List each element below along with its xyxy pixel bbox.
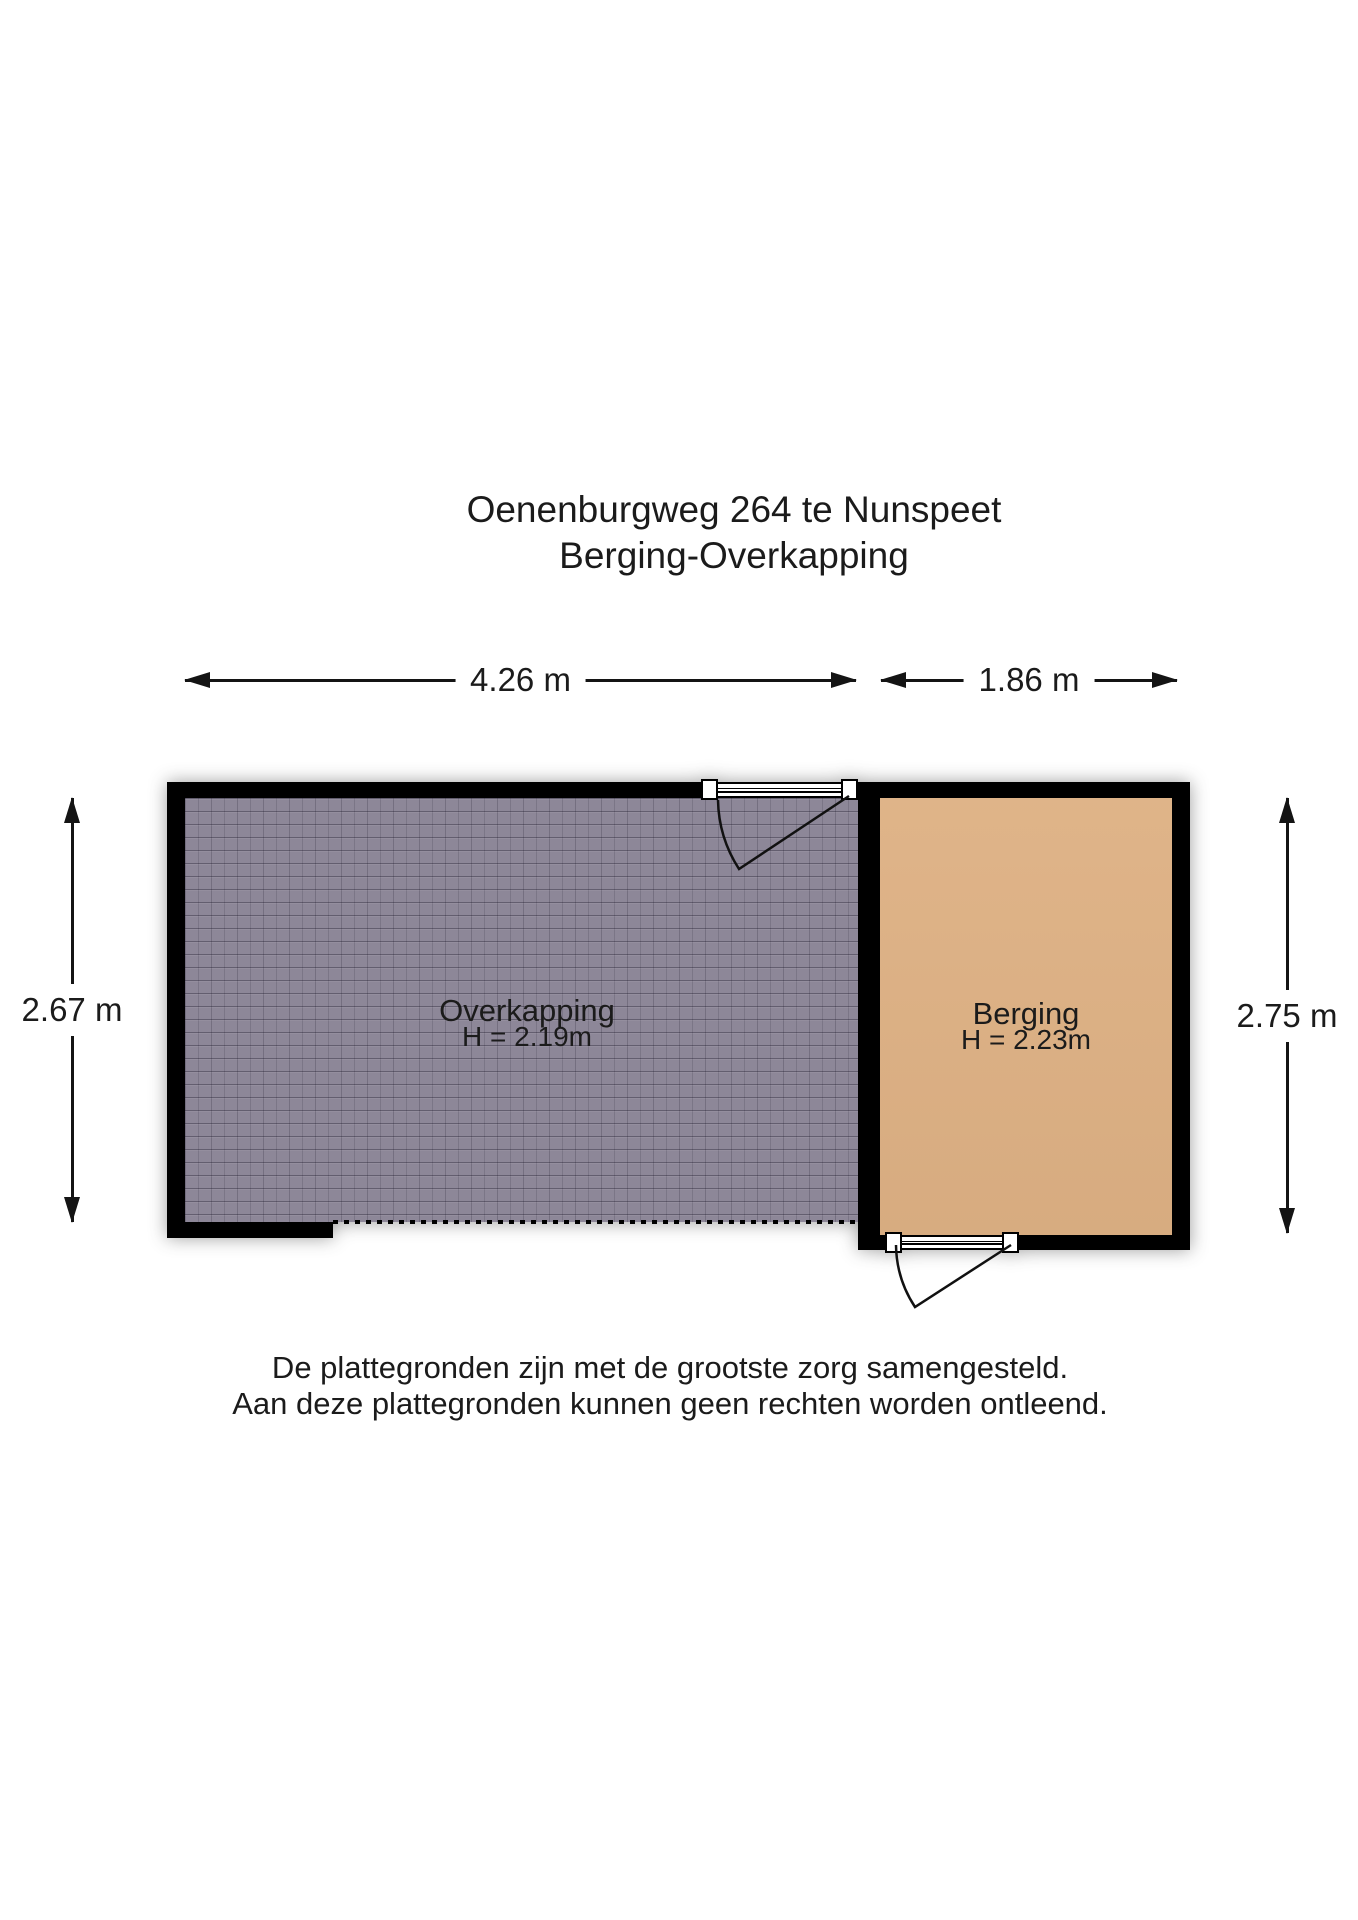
room-label-overkapping: Overkapping H = 2.19m — [439, 997, 615, 1050]
door-post-icon — [701, 779, 718, 800]
door-post-icon — [885, 1232, 902, 1253]
room-label-berging: Berging H = 2.23m — [961, 1000, 1091, 1053]
floorplan — [0, 0, 1358, 1920]
disclaimer-line2: Aan deze plattegronden kunnen geen recht… — [232, 1386, 1108, 1422]
wall-right-berging — [1172, 782, 1190, 1250]
disclaimer: De plattegronden zijn met de grootste zo… — [232, 1350, 1108, 1422]
room-name: Overkapping — [439, 997, 615, 1024]
wall-left-overkapping — [167, 782, 185, 1238]
dimension-label: 2.67 m — [16, 984, 129, 1036]
floorplan-page: Oenenburgweg 264 te Nunspeet Berging-Ove… — [0, 0, 1358, 1920]
room-height: H = 2.23m — [961, 1027, 1091, 1053]
dimension-label: 2.75 m — [1231, 990, 1344, 1042]
disclaimer-line1: De plattegronden zijn met de grootste zo… — [232, 1350, 1108, 1386]
open-side-dashed-line — [333, 1220, 858, 1224]
door-post-icon — [1002, 1232, 1019, 1253]
wall-bottom-berging-right — [1018, 1235, 1172, 1250]
wall-bottom-stub — [167, 1222, 333, 1238]
dimension-label: 1.86 m — [964, 661, 1095, 699]
glazed-door-frame-top — [703, 782, 857, 798]
door-post-icon — [841, 779, 858, 800]
room-height: H = 2.19m — [439, 1024, 615, 1050]
dimension-label: 4.26 m — [455, 661, 586, 699]
door-frame-bottom — [887, 1235, 1018, 1250]
wall-separation — [858, 782, 880, 1250]
wall-top-berging — [880, 782, 1190, 798]
wall-top-overkapping — [167, 782, 703, 798]
room-name: Berging — [961, 1000, 1091, 1027]
